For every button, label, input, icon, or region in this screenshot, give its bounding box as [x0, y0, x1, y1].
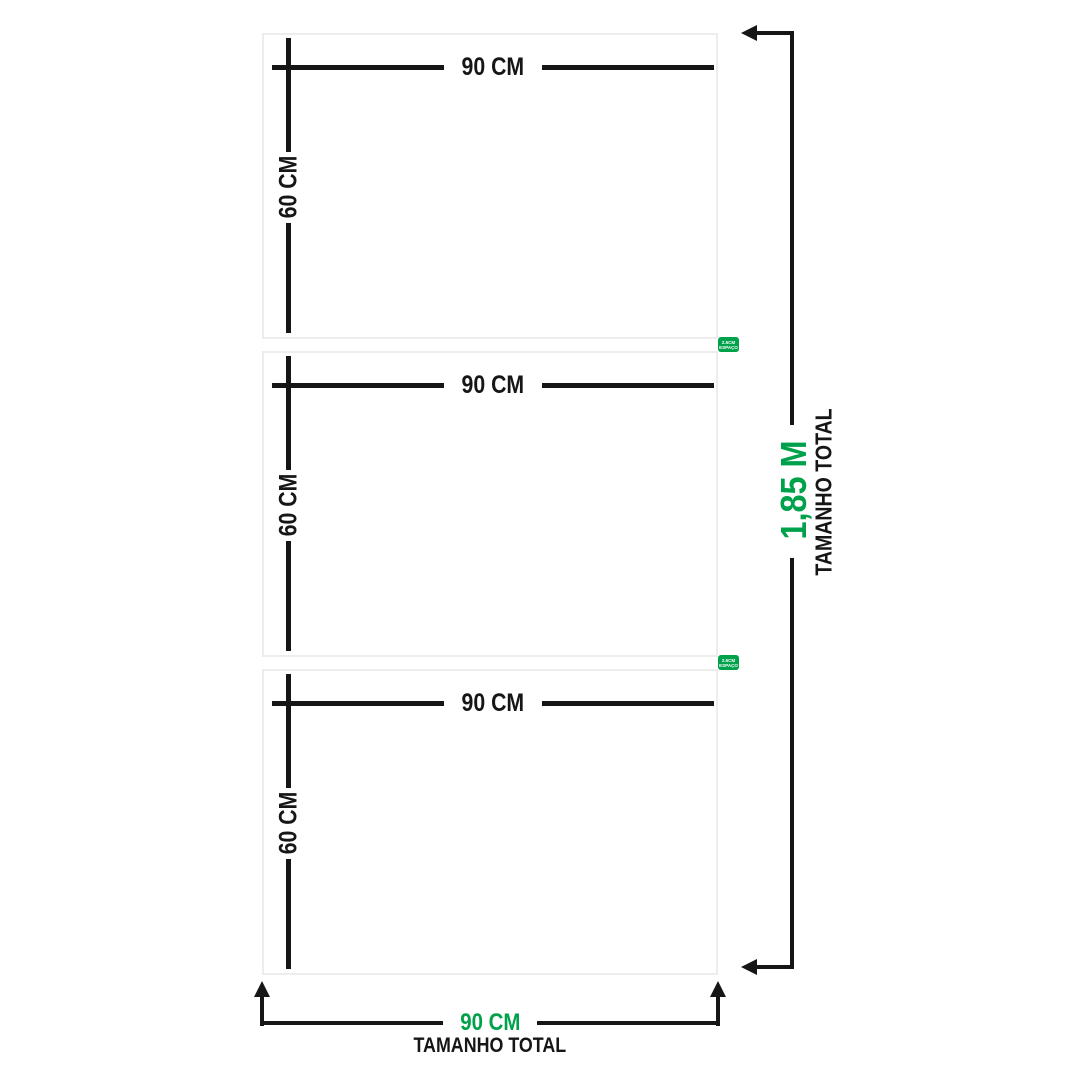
total-width-label: TAMANHO TOTAL: [260, 1034, 720, 1058]
dimension-line: [286, 223, 291, 333]
panel-3-width-dimension: 90 CM: [272, 689, 714, 718]
total-width-value: 90 CM: [460, 1009, 520, 1037]
dimension-line: [542, 383, 714, 388]
dimension-line: [542, 65, 714, 70]
panel-3: 90 CM 60 CM: [262, 669, 718, 975]
dimension-line: [537, 1021, 720, 1025]
gap-badge-label: ESPAÇO: [719, 663, 738, 668]
size-diagram: 90 CM 60 CM 90 CM 60 CM 90 CM 60 CM 2.5C…: [0, 0, 1080, 1080]
gap-spacing-badge-1: 2.5CM ESPAÇO: [718, 337, 739, 352]
dimension-line: [260, 1021, 443, 1025]
panel-2-width-label: 90 CM: [462, 371, 525, 400]
total-height-label: TAMANHO TOTAL: [811, 408, 838, 575]
panel-1-height-label: 60 CM: [275, 156, 304, 219]
panel-2-width-dimension: 90 CM: [272, 371, 714, 400]
dimension-line: [286, 859, 291, 969]
dimension-line: [272, 65, 444, 70]
panel-3-width-label: 90 CM: [462, 689, 525, 718]
dimension-line: [790, 558, 794, 969]
dimension-line: [286, 38, 291, 152]
gap-badge-label: ESPAÇO: [719, 345, 738, 350]
panel-1-width-label: 90 CM: [462, 53, 525, 82]
gap-spacing-badge-2: 2.5CM ESPAÇO: [718, 655, 739, 670]
dimension-line: [755, 965, 794, 969]
dimension-line: [272, 383, 444, 388]
panel-3-height-label: 60 CM: [275, 792, 304, 855]
total-height-value: 1,85 M: [773, 440, 815, 539]
dimension-line: [286, 541, 291, 651]
total-width-dimension: 90 CM: [260, 1012, 720, 1034]
panel-2: 90 CM 60 CM: [262, 351, 718, 657]
dimension-line: [286, 674, 291, 788]
dimension-line: [542, 701, 714, 706]
dimension-line: [790, 31, 794, 425]
panel-2-height-label: 60 CM: [275, 474, 304, 537]
total-width-label-text: TAMANHO TOTAL: [414, 1034, 567, 1058]
panel-1-width-dimension: 90 CM: [272, 53, 714, 82]
dimension-line: [755, 31, 794, 35]
arrow-left-icon: [741, 959, 757, 975]
dimension-line: [272, 701, 444, 706]
dimension-line: [286, 356, 291, 470]
panel-1: 90 CM 60 CM: [262, 33, 718, 339]
